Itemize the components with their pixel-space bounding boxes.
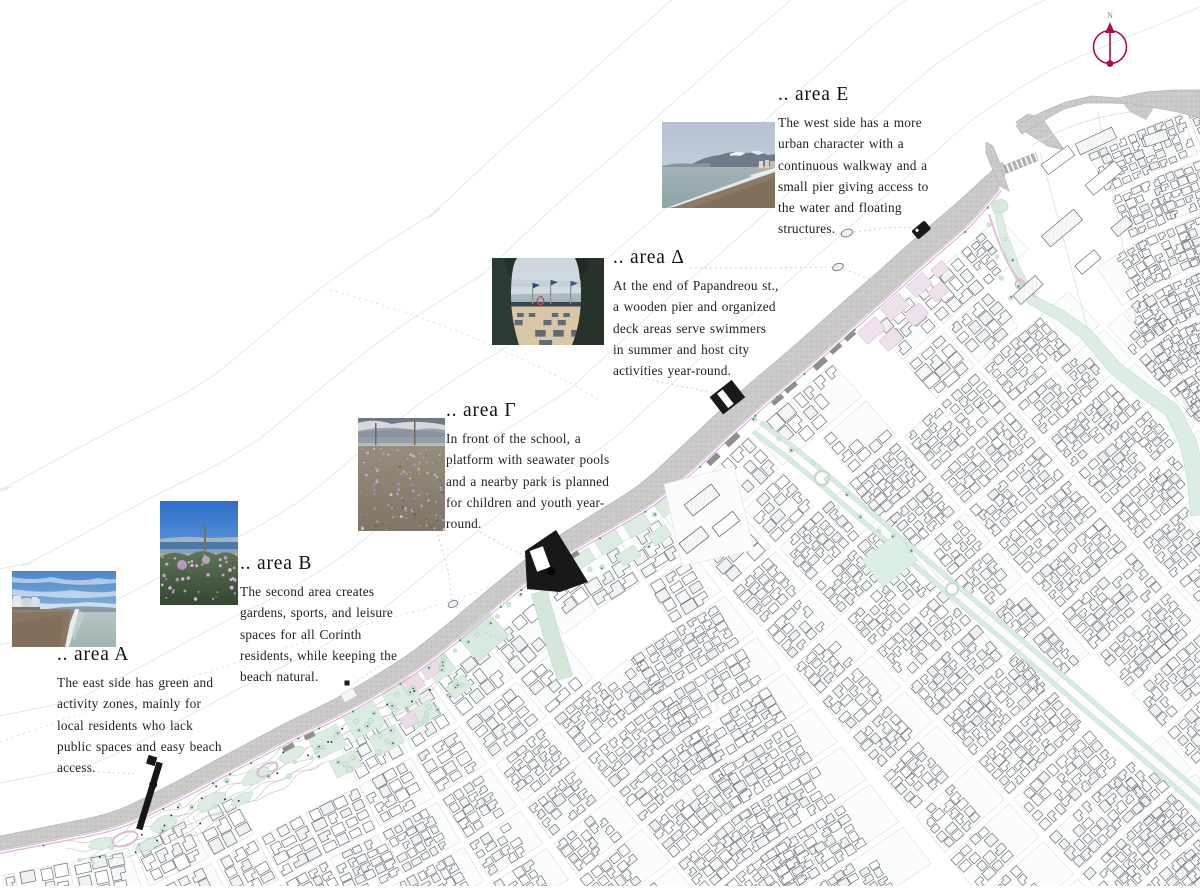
svg-text:N: N xyxy=(1107,11,1113,20)
